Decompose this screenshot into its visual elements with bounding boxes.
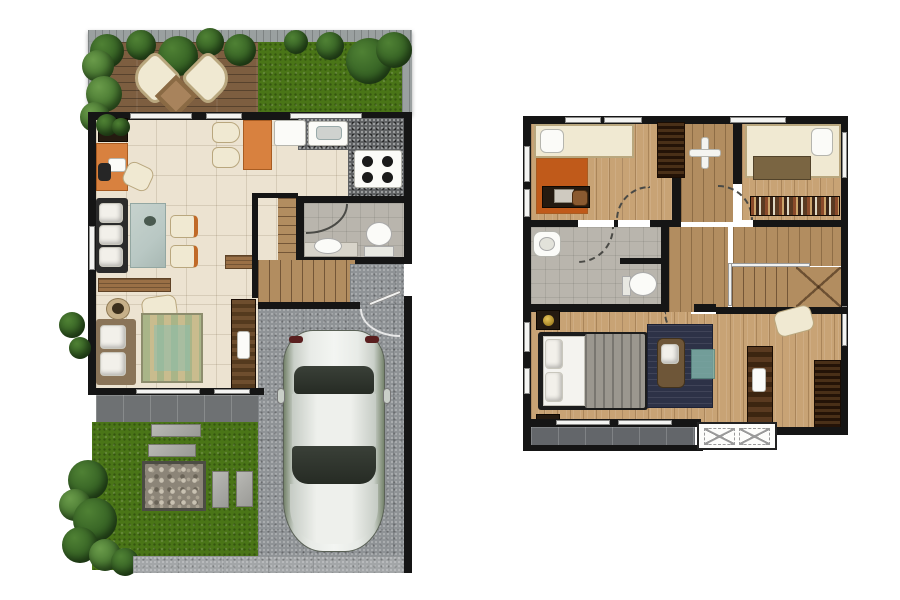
window (524, 146, 530, 182)
window (89, 226, 95, 270)
condenser-unit-icon (704, 428, 735, 445)
shrub-icon (224, 34, 256, 66)
burner-icon (362, 156, 373, 167)
shrub-icon (196, 28, 224, 56)
stepping-stone (236, 471, 253, 507)
kitchen-cabinet (274, 120, 306, 146)
wardrobe (814, 360, 841, 430)
window (556, 420, 610, 425)
pillow (540, 129, 564, 153)
mid-wall (523, 220, 578, 227)
shrub-icon (69, 337, 91, 359)
bathroom-wall-top (295, 196, 404, 203)
console-decor (752, 368, 766, 392)
staircase-straight-run (732, 267, 796, 307)
car-mirror (383, 388, 391, 404)
ground-floor-plan (88, 30, 412, 573)
bathroom-right-wall (661, 220, 669, 312)
mid-wall (753, 220, 848, 227)
balcony-rail (523, 445, 703, 451)
accent-chair (170, 245, 198, 268)
loveseat-cushion (100, 352, 126, 376)
wardrobe (657, 122, 685, 178)
car-windshield (292, 446, 376, 484)
basin-bowl (539, 237, 555, 251)
sidewalk (133, 556, 404, 573)
car-rear-window (294, 366, 374, 394)
toilet (366, 222, 392, 246)
burner-icon (382, 156, 393, 167)
shrub-icon (316, 32, 344, 60)
shrub-icon (376, 32, 412, 68)
tv (237, 331, 250, 359)
window (524, 189, 530, 217)
window (136, 389, 200, 394)
garage-wall-top (258, 302, 360, 309)
mid-wall-post (614, 220, 618, 227)
dining-table (243, 120, 272, 170)
office-chair (98, 163, 111, 181)
balcony-deck (531, 427, 695, 445)
car-hood (290, 484, 378, 544)
stair-landing (733, 227, 841, 266)
rug-center-panel (154, 325, 190, 371)
window (730, 117, 786, 123)
sofa-cushion (99, 203, 123, 223)
staircase-upper-run (278, 198, 296, 260)
floor-plan-canvas (0, 0, 900, 600)
hall-bedroom2-wall (733, 124, 742, 184)
master-top-wall-post (694, 304, 716, 312)
car-mirror (277, 388, 285, 404)
cooktop (354, 150, 402, 188)
condenser-unit-icon (739, 428, 770, 445)
window (604, 117, 642, 123)
desk-chair (572, 190, 588, 206)
burner-icon (382, 172, 393, 183)
toilet (629, 272, 657, 296)
second-floor-plan (523, 116, 848, 456)
sink-basin (316, 126, 342, 140)
bookshelf (750, 196, 840, 216)
sofa-cushion (99, 225, 123, 245)
shrub-icon (284, 30, 308, 54)
blanket (753, 156, 811, 180)
table-lamp-icon (543, 315, 554, 326)
decor-bowl (112, 303, 124, 314)
wash-basin (314, 238, 342, 254)
car-taillight (365, 336, 379, 343)
blanket (585, 334, 645, 408)
dining-chair (212, 147, 240, 168)
right-wall-lower (404, 296, 412, 573)
staircase-lower-run (258, 260, 355, 308)
ottoman (691, 349, 715, 379)
sideboard (98, 278, 171, 292)
shrub-icon (59, 312, 85, 338)
window (524, 368, 530, 394)
desk-drawers (554, 189, 574, 203)
stepping-stone (151, 424, 201, 437)
glass-coffee-table (130, 203, 166, 268)
rear-patio (96, 395, 258, 422)
window (214, 389, 250, 394)
pillow (545, 372, 563, 402)
plant-icon (112, 118, 130, 136)
service-ledge (697, 422, 777, 450)
window (842, 132, 847, 178)
double-bed-master (538, 332, 648, 410)
window (130, 113, 192, 119)
family-bottom-wall (777, 427, 848, 435)
accent-chair (170, 215, 198, 238)
pebble-pad (142, 461, 206, 511)
window (618, 420, 672, 425)
toilet-tank (364, 246, 394, 257)
sofa-cushion (99, 247, 123, 267)
pillow (811, 128, 833, 156)
window (524, 322, 530, 352)
car (283, 330, 385, 555)
staircase-winder (796, 267, 841, 307)
ceiling-lamp-icon (689, 149, 721, 157)
stepping-stone (148, 444, 196, 457)
armchair-pillow (661, 344, 679, 364)
right-wall-upper (404, 112, 412, 264)
shower-partition (620, 258, 661, 264)
pillow (545, 339, 563, 369)
master-bottom-wall (523, 419, 701, 427)
window (206, 113, 242, 119)
bathroom-wall-left (295, 203, 304, 257)
hallway-floor-mid (669, 227, 728, 312)
window (565, 117, 601, 123)
table-decor (144, 216, 156, 226)
stepping-stone (212, 471, 229, 508)
dining-chair (212, 122, 240, 143)
car-taillight (289, 336, 303, 343)
car-roof (292, 394, 376, 446)
burner-icon (362, 172, 373, 183)
loveseat-cushion (100, 325, 126, 349)
